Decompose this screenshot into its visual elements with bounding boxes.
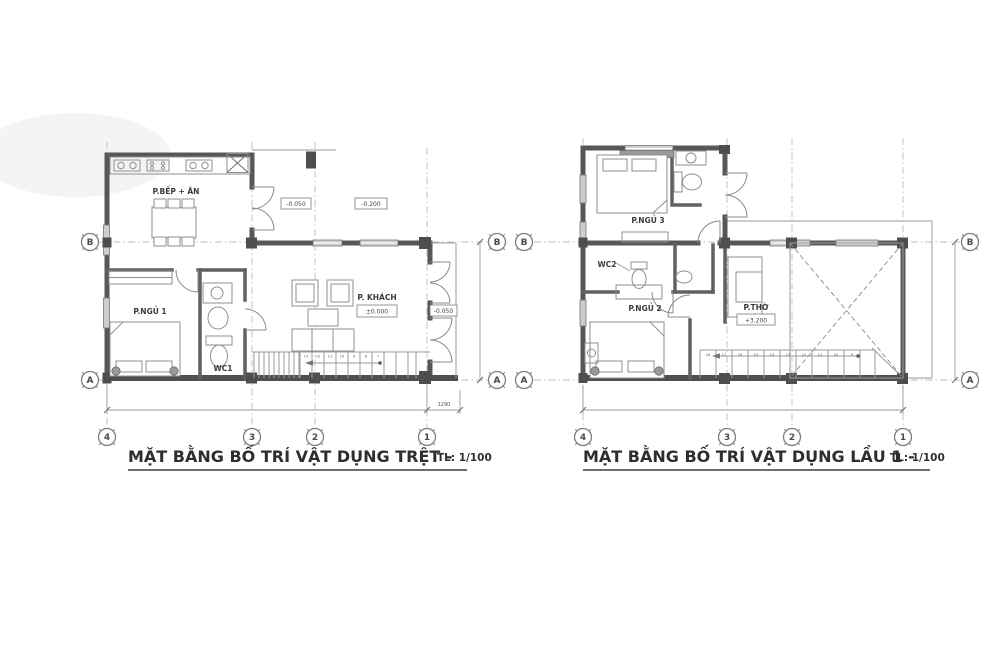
svg-text:A: A <box>87 376 94 386</box>
ground-floor-plan: 13 12 11 10 9 8 7 P.BẾP + ĂN P.NGỦ 1 WC1… <box>82 142 506 470</box>
bed-bedroom3 <box>597 151 674 214</box>
svg-text:B: B <box>494 238 501 248</box>
grid-bubble-ground-col-1: 1 <box>419 429 436 446</box>
elevation-box-living: ±0.000 <box>357 305 397 317</box>
svg-text:12: 12 <box>802 353 806 357</box>
plan-scale-ground: TL: 1/100 <box>437 452 492 464</box>
svg-text:±0.000: ±0.000 <box>366 309 388 316</box>
stair-tread-numbers-ground: 13 12 11 10 9 8 7 <box>304 355 379 359</box>
room-label-wc1: WC1 <box>214 364 233 373</box>
room-label-bedroom1: P.NGỦ 1 <box>133 306 166 316</box>
svg-text:11: 11 <box>328 355 332 359</box>
first-floor-plan: 18 17 16 15 14 13 12 11 10 9 P.NGỦ 3 WC2… <box>516 138 979 470</box>
svg-text:+3.200: +3.200 <box>745 317 767 324</box>
wc1-fixtures <box>203 283 232 367</box>
svg-text:16: 16 <box>738 353 742 357</box>
svg-text:15: 15 <box>754 353 758 357</box>
svg-text:-0.050: -0.050 <box>434 308 454 315</box>
room-label-bedroom2: P.NGỦ 2 <box>628 303 661 313</box>
grid-bubble-ground-row-A-right: A <box>489 372 506 389</box>
svg-text:10: 10 <box>834 353 838 357</box>
grid-bubble-first-row-A-right: A <box>962 372 979 389</box>
svg-text:14: 14 <box>770 353 775 357</box>
grid-bubble-first-col-3: 3 <box>719 429 736 446</box>
svg-text:13: 13 <box>786 353 790 357</box>
floor-plans-drawing: 13 12 11 10 9 8 7 P.BẾP + ĂN P.NGỦ 1 WC1… <box>0 0 1000 667</box>
drawing-sheet: 13 12 11 10 9 8 7 P.BẾP + ĂN P.NGỦ 1 WC1… <box>0 0 1000 667</box>
svg-text:A: A <box>521 376 528 386</box>
bedroom2-furniture <box>585 285 664 378</box>
elevation-box-worship: +3.200 <box>737 314 775 325</box>
svg-text:1: 1 <box>900 433 906 443</box>
grid-bubble-ground-row-A-left: A <box>82 372 99 389</box>
svg-text:-0.050: -0.050 <box>286 201 306 208</box>
plan-scale-first: TL: 1/100 <box>890 452 945 464</box>
svg-text:A: A <box>967 376 974 386</box>
dimension-value: 1290 <box>438 402 451 408</box>
svg-text:11: 11 <box>818 353 822 357</box>
grid-bubble-first-row-B-right: B <box>962 234 979 251</box>
grid-bubble-first-col-2: 2 <box>784 429 801 446</box>
grid-bubble-ground-col-4: 4 <box>99 429 116 446</box>
double-height-void <box>790 243 903 378</box>
svg-text:10: 10 <box>340 355 344 359</box>
svg-text:3: 3 <box>724 433 730 443</box>
ensuite-wc-fixtures <box>674 151 706 192</box>
svg-text:8: 8 <box>365 355 367 359</box>
living-room-furniture <box>292 280 354 351</box>
plan-title-first: MẶT BẰNG BỐ TRÍ VẬT DỤNG LẦU 1 - <box>583 445 915 466</box>
svg-text:B: B <box>521 238 528 248</box>
svg-text:2: 2 <box>789 433 795 443</box>
sofa <box>292 329 354 351</box>
grid-bubble-ground-col-3: 3 <box>244 429 261 446</box>
stair-direction-arrow <box>305 360 382 366</box>
room-label-bedroom3: P.NGỦ 3 <box>631 215 664 225</box>
grid-bubble-first-col-1: 1 <box>895 429 912 446</box>
svg-text:4: 4 <box>104 433 110 443</box>
grid-bubble-ground-row-B-right: B <box>489 234 506 251</box>
svg-text:9: 9 <box>851 353 853 357</box>
svg-text:1: 1 <box>424 433 430 443</box>
svg-text:18: 18 <box>706 353 710 357</box>
grid-bubble-first-col-4: 4 <box>575 429 592 446</box>
room-label-worship: P.THỜ <box>744 303 769 312</box>
svg-text:12: 12 <box>316 355 320 359</box>
stairs-ground: 13 12 11 10 9 8 7 <box>252 352 430 378</box>
room-label-living: P. KHÁCH <box>357 293 396 302</box>
elevation-box-porch: -0.050 <box>281 198 311 209</box>
dining-table <box>152 199 196 246</box>
grid-bubble-first-row-A-left: A <box>516 372 533 389</box>
bed-bedroom1 <box>110 322 180 376</box>
svg-text:2: 2 <box>312 433 318 443</box>
grid-bubble-first-row-B-left: B <box>516 234 533 251</box>
room-label-kitchen-dining: P.BẾP + ĂN <box>153 186 200 196</box>
grid-bubble-ground-row-B-left: B <box>82 234 99 251</box>
svg-text:13: 13 <box>304 355 308 359</box>
svg-text:9: 9 <box>353 355 355 359</box>
plan-title-ground: MẶT BẰNG BỐ TRÍ VẬT DỤNG TRỆT - <box>128 445 453 466</box>
grid-bubble-ground-col-2: 2 <box>307 429 324 446</box>
elevation-box-side: -0.050 <box>430 305 457 316</box>
svg-text:B: B <box>967 238 974 248</box>
elevation-box-yard: -0.200 <box>355 198 387 209</box>
svg-text:-0.200: -0.200 <box>361 201 381 208</box>
svg-text:4: 4 <box>580 433 586 443</box>
svg-text:7: 7 <box>377 355 379 359</box>
svg-text:3: 3 <box>249 433 255 443</box>
room-label-wc2: WC2 <box>598 260 617 269</box>
svg-text:A: A <box>494 376 501 386</box>
wardrobe-bedroom1 <box>109 271 172 284</box>
svg-text:B: B <box>87 238 94 248</box>
svg-text:17: 17 <box>722 353 726 357</box>
